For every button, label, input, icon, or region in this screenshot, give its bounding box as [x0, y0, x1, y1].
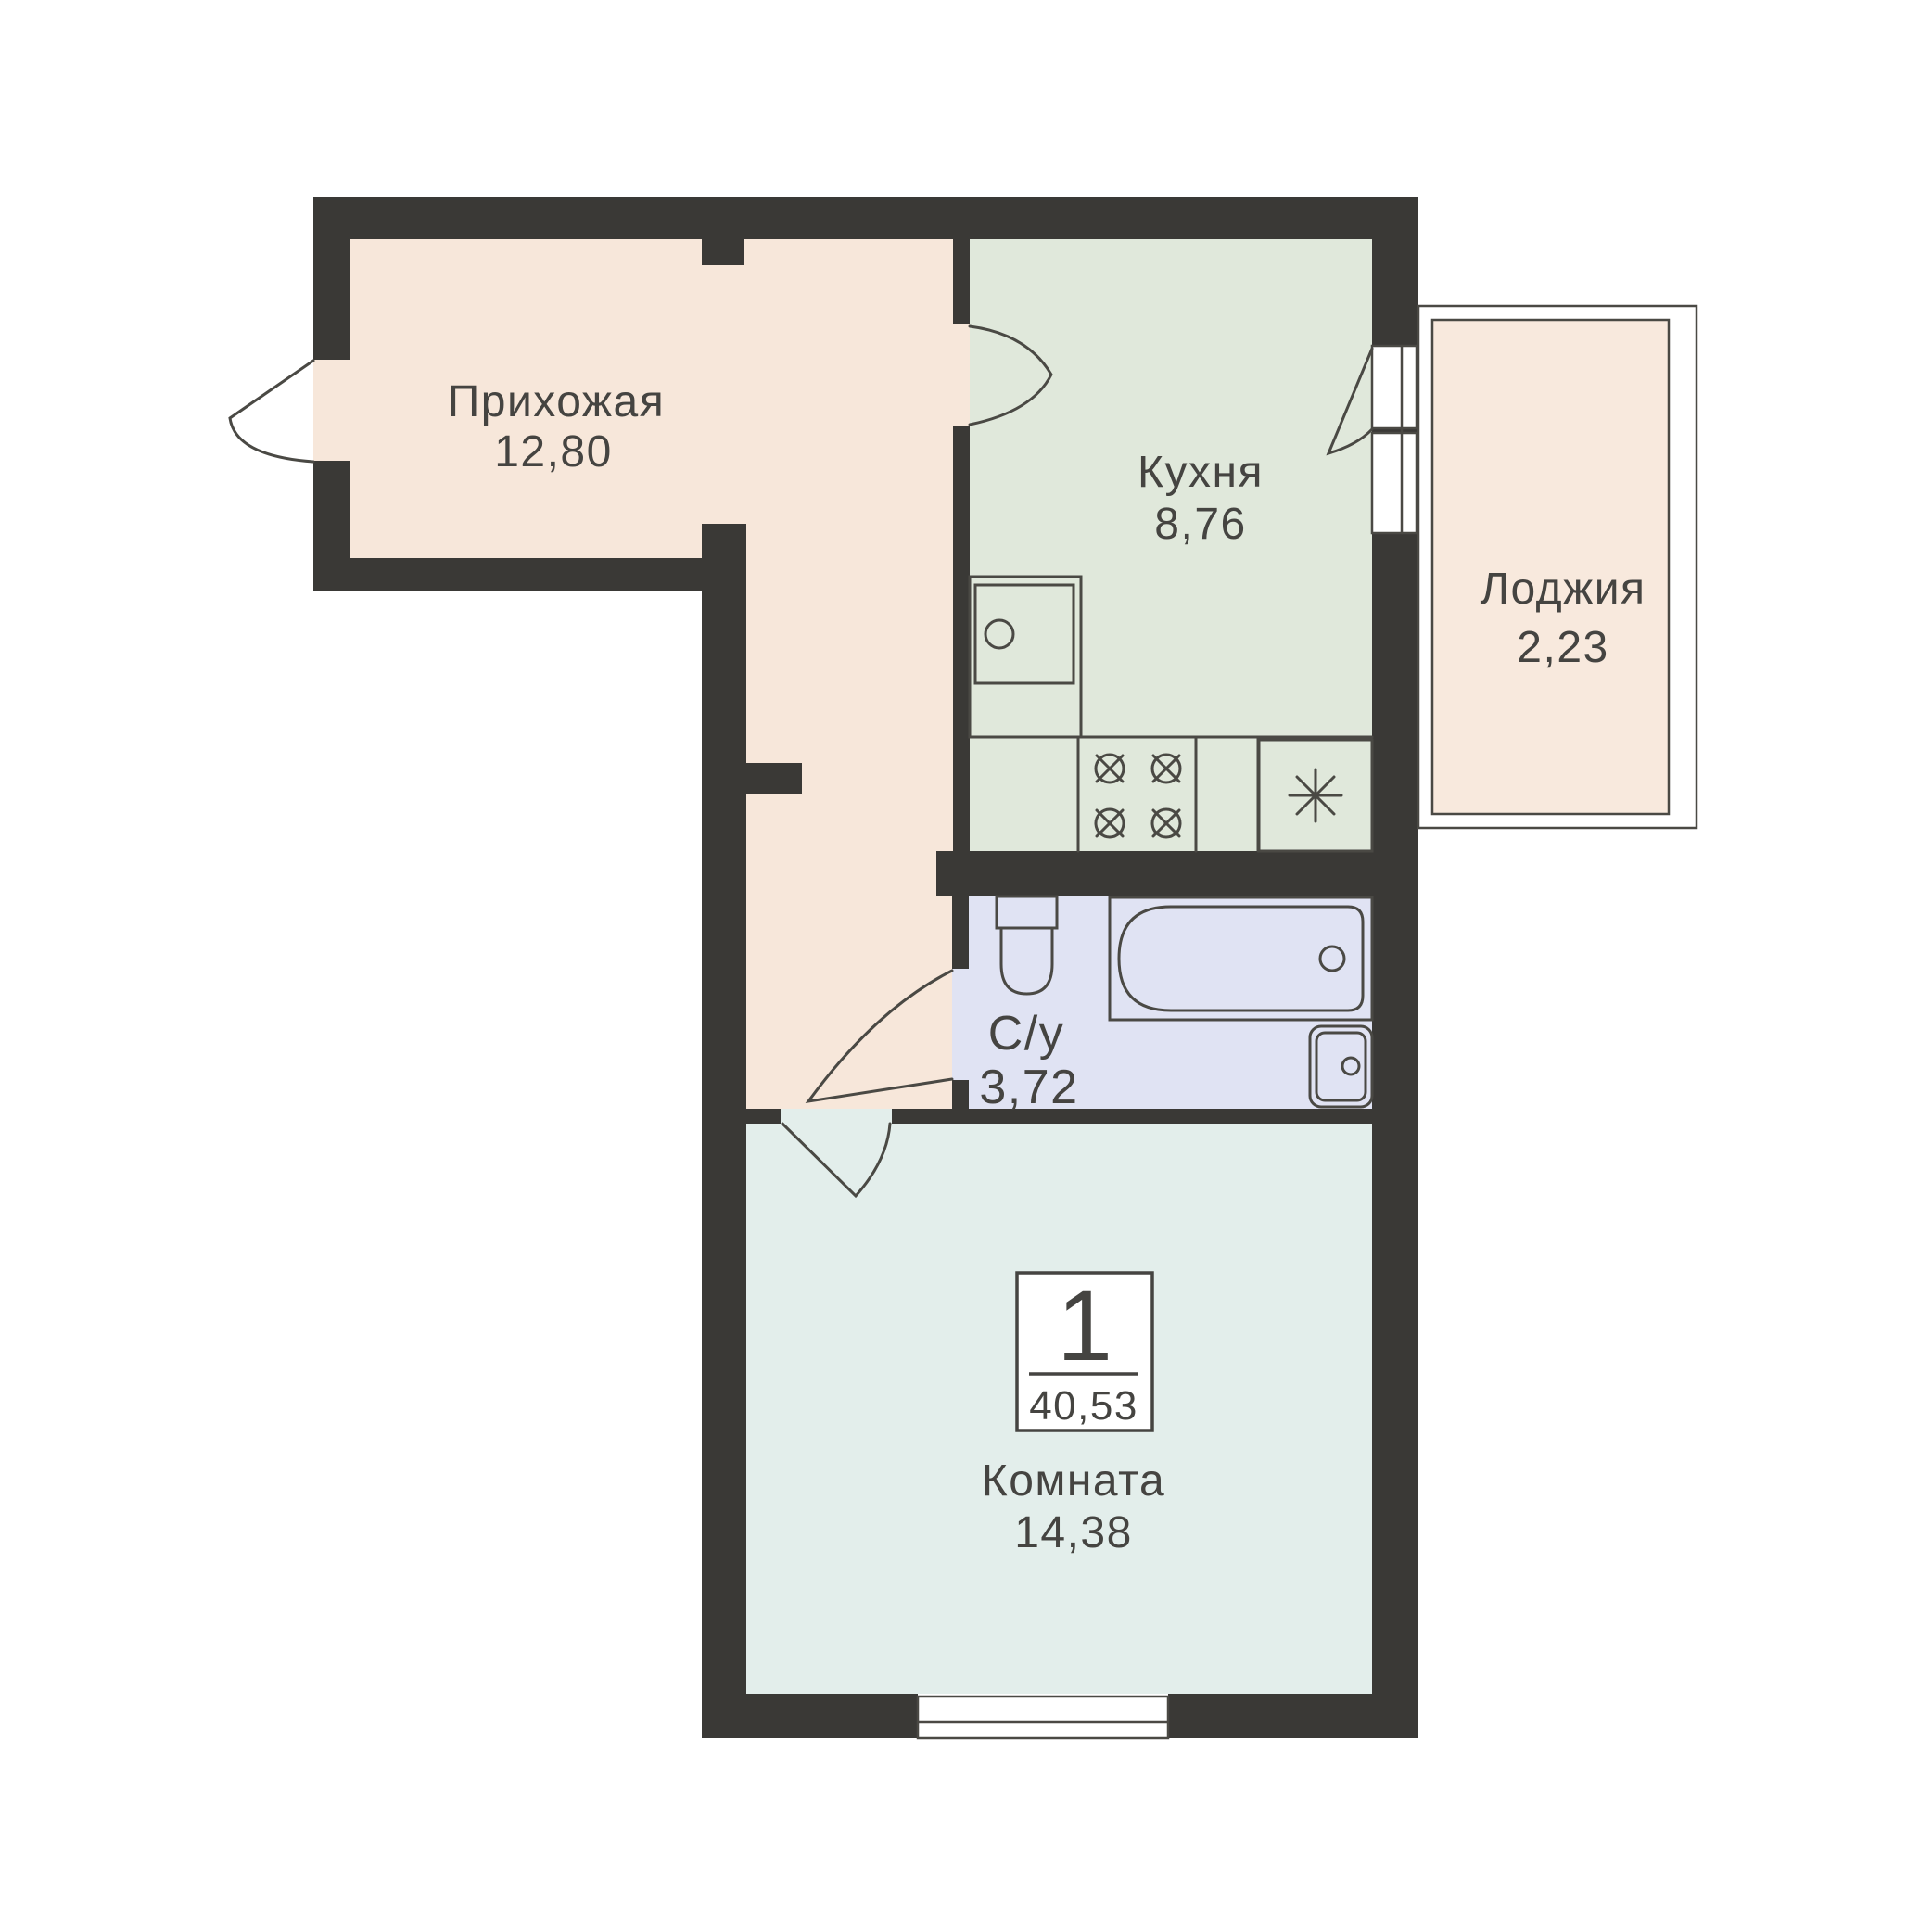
loggia-area: 2,23 — [1517, 623, 1608, 672]
bathroom-area: 3,72 — [979, 1061, 1078, 1114]
kitchen-area: 8,76 — [1154, 500, 1246, 549]
wall-kitchen-partition-lower — [953, 426, 970, 851]
wall-top — [313, 197, 1418, 239]
bathroom-label: С/у — [988, 1007, 1065, 1061]
balcony-window — [1372, 433, 1417, 533]
corridor-floor — [744, 558, 953, 1109]
wall-kitchen-partition-upper — [953, 239, 970, 324]
wall-bathroom-top — [936, 851, 1418, 896]
floor-plan-page: Прихожая 12,80 Кухня 8,76 Лоджия 2,23 С/… — [0, 0, 1932, 1932]
badge-room-count: 1 — [1057, 1269, 1112, 1381]
loggia-label: Лоджия — [1480, 565, 1646, 614]
hallway-label: Прихожая — [448, 377, 665, 426]
kitchen-opening-floor — [953, 324, 970, 426]
wall-top-notch — [702, 239, 744, 265]
kitchen-label: Кухня — [1138, 448, 1264, 497]
wall-room-partition-left — [746, 1109, 781, 1124]
wall-corridor-stub — [746, 763, 802, 794]
wall-bottom-left — [702, 1694, 918, 1738]
hallway-area: 12,80 — [494, 427, 613, 477]
room-opening-floor — [781, 1109, 892, 1124]
badge-total-area: 40,53 — [1029, 1383, 1138, 1429]
wall-left-upper — [313, 197, 350, 360]
balcony-door — [1372, 346, 1417, 428]
wall-right-upper — [1372, 197, 1418, 346]
wall-right-lower — [1372, 533, 1418, 1738]
wall-left-spine — [702, 524, 746, 1738]
wall-bottom-right — [1168, 1694, 1418, 1738]
room-label: Комната — [982, 1456, 1165, 1506]
bathroom-opening-floor — [952, 969, 969, 1080]
room-area: 14,38 — [1014, 1508, 1133, 1557]
entry-opening-floor — [313, 360, 350, 461]
floor-plan: Прихожая 12,80 Кухня 8,76 Лоджия 2,23 С/… — [0, 0, 1932, 1932]
room-window-inner-pane — [918, 1722, 1168, 1738]
wall-room-partition-right — [892, 1109, 1372, 1124]
wall-bathroom-left-upper — [952, 896, 969, 969]
entry-door-swing — [230, 361, 313, 462]
room-window-outer-pane — [918, 1697, 1168, 1722]
wall-hallway-bottom — [313, 558, 744, 591]
